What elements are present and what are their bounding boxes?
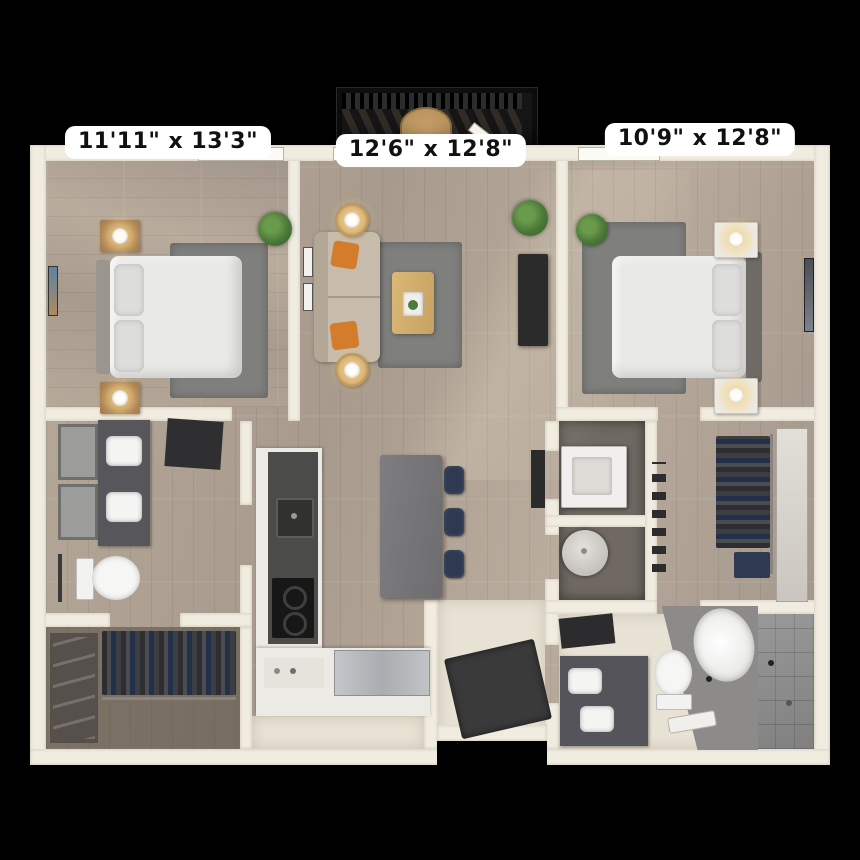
- shower-floor: [756, 606, 814, 749]
- bath1-leaning-mirror: [164, 418, 223, 470]
- washer-lid: [572, 457, 612, 495]
- wall-v-utility-a: [545, 421, 559, 451]
- fridge-stainless: [334, 650, 430, 696]
- wall-v-closet1: [240, 627, 252, 749]
- dimension-label-bedroom1: 11'11" x 13'3": [65, 126, 271, 159]
- bar-stool-1: [444, 466, 464, 494]
- wall-art-bedroom1: [48, 266, 58, 316]
- dimension-label-bedroom2: 10'9" x 12'8": [605, 123, 795, 156]
- coffee-table: [392, 272, 434, 334]
- cooktop: [272, 578, 314, 638]
- lamp2-bottom: [728, 387, 744, 403]
- wall-v-bedroom2: [556, 145, 568, 421]
- bed1-headboard: [96, 260, 110, 374]
- kitchen-sink: [276, 498, 314, 538]
- closet2-clothes: [716, 436, 770, 548]
- wall-outer-bottom: [30, 749, 830, 765]
- floor-plan: 11'11" x 13'3" 12'6" x 12'8" 10'9" x 12'…: [0, 0, 860, 860]
- towel-bar-1: [58, 554, 62, 602]
- sofa-seat-split: [328, 296, 380, 298]
- lamp1-bottom: [112, 390, 128, 406]
- kitchen-faucet: [291, 513, 297, 519]
- shoe-slats: [53, 637, 95, 739]
- toilet2-bowl: [654, 650, 692, 696]
- closet1-rod: [102, 697, 236, 700]
- closet1-shoe-shelf: [50, 633, 98, 743]
- wall-art-bedroom2: [804, 258, 814, 332]
- bed1-pillow-bottom: [114, 320, 144, 372]
- bed2-pillow-top: [712, 264, 742, 316]
- coffee-table-plant: [408, 300, 418, 310]
- tv-console: [518, 254, 548, 346]
- water-heater: [562, 530, 608, 576]
- washer: [561, 446, 627, 508]
- bed1-pillow-top: [114, 264, 144, 316]
- bed2-pillow-bottom: [712, 320, 742, 372]
- toilet1-bowl: [92, 556, 140, 600]
- bath2-sink-top: [568, 668, 602, 694]
- wall-h-bathroom2-a: [545, 600, 657, 614]
- heater-pipe: [581, 548, 587, 554]
- sofa-pillow-orange-bottom: [329, 320, 359, 350]
- plant-bedroom2: [576, 214, 608, 246]
- closet2-rod: [770, 434, 773, 574]
- bath1-mirror-top: [58, 424, 98, 480]
- wall-outer-right: [814, 145, 830, 765]
- kettle: [274, 668, 280, 674]
- sofa-back: [314, 232, 328, 362]
- lamp-living-bottom: [344, 362, 360, 378]
- lamp-living-top: [344, 212, 360, 228]
- shower-head: [768, 660, 774, 666]
- plant-bedroom1: [258, 212, 292, 246]
- lamp1-top: [112, 228, 128, 244]
- closet2-mirror-door: [776, 428, 808, 602]
- wall-h-laundry: [545, 515, 657, 527]
- burner-2: [283, 612, 307, 636]
- lamp2-top: [728, 231, 744, 247]
- wall-v-bedroom1: [288, 145, 300, 421]
- closet2-clothes-extra: [734, 552, 770, 578]
- plant-living: [512, 200, 548, 236]
- closet1-clothes: [102, 631, 236, 695]
- burner-1: [283, 586, 307, 610]
- bath1-mirror-bottom: [58, 484, 98, 540]
- counter-appliances: [264, 658, 324, 688]
- wall-frames-living: [303, 247, 313, 277]
- tub-faucet: [706, 676, 712, 682]
- wall-outer-left: [30, 145, 46, 765]
- bath2-leaning-mirror: [559, 613, 616, 648]
- wall-v-bathroom1-a: [240, 421, 252, 505]
- closet2-shoes: [652, 462, 666, 572]
- wall-panel-dining: [531, 450, 545, 508]
- bath1-sink-bottom: [106, 492, 142, 522]
- sofa-pillow-orange-top: [330, 240, 360, 270]
- bath1-sink-top: [106, 436, 142, 466]
- wall-h-bathroom1-b: [180, 613, 252, 627]
- bar-stool-3: [444, 550, 464, 578]
- canister: [290, 668, 296, 674]
- wall-frames-living-2: [303, 283, 313, 311]
- floor-kitchen-walkway: [252, 716, 424, 749]
- dimension-label-living: 12'6" x 12'8": [336, 134, 526, 167]
- bath2-sink-bottom: [580, 706, 614, 732]
- shower-drain: [786, 700, 792, 706]
- toilet2-tank: [656, 694, 692, 710]
- entry-notch: [437, 741, 547, 765]
- wall-h-bedroom2-a: [556, 407, 658, 421]
- kitchen-island: [380, 455, 442, 598]
- bed2-headboard: [746, 252, 762, 382]
- bar-stool-2: [444, 508, 464, 536]
